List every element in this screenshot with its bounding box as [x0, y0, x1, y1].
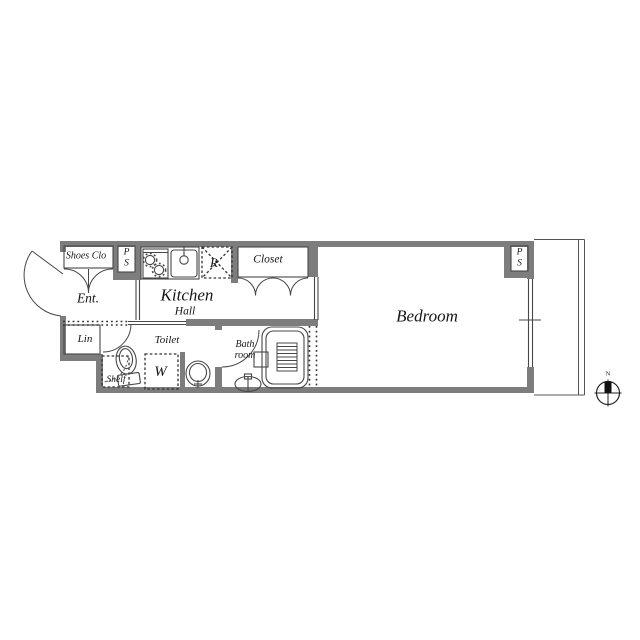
bath-bedroom-dotted-wall	[310, 326, 317, 387]
room-label-bedroom: Bedroom	[396, 308, 458, 327]
room-label-closet: Closet	[253, 254, 282, 267]
balcony-window	[519, 279, 541, 367]
bath-sink-icon	[235, 374, 261, 392]
compass-north-label: N	[606, 370, 611, 377]
floor-plan-drawing	[0, 0, 640, 640]
bedroom-door	[315, 277, 319, 320]
kitchen-sink-icon	[171, 246, 197, 277]
bathtub-drain-grid	[277, 343, 297, 371]
closet-door-arcs	[238, 278, 308, 296]
room-label-linen: Lin	[78, 333, 93, 345]
room-label-toilet: Toilet	[155, 334, 180, 346]
stove-icon	[143, 249, 168, 278]
compass-icon	[595, 380, 622, 407]
label-refrigerator-space: R	[210, 256, 218, 270]
shoes-closet-door-arcs	[64, 269, 113, 293]
room-label-pipe-shaft-right: PS	[515, 247, 524, 268]
room-label-pipe-shaft-left: PS	[122, 247, 131, 268]
room-label-kitchen: Kitchen	[161, 287, 214, 306]
balcony	[534, 240, 585, 396]
kitchen-counter	[141, 246, 199, 279]
room-label-bathroom: Bath room	[226, 339, 264, 361]
room-label-hall: Hall	[175, 306, 195, 319]
floor-plan: Shoes Clo PS Ent. Kitchen Hall R Closet …	[0, 0, 640, 640]
washbasin-icon	[186, 361, 210, 388]
label-washer-space: W	[154, 364, 167, 381]
label-shelf: Shelf	[107, 375, 126, 385]
room-label-shoes-closet: Shoes Clo	[66, 251, 106, 262]
toilet-door-arc	[103, 324, 131, 352]
entrance-door-arc	[24, 251, 63, 316]
compass-north-needle	[605, 382, 612, 394]
room-label-entrance: Ent.	[77, 292, 99, 307]
